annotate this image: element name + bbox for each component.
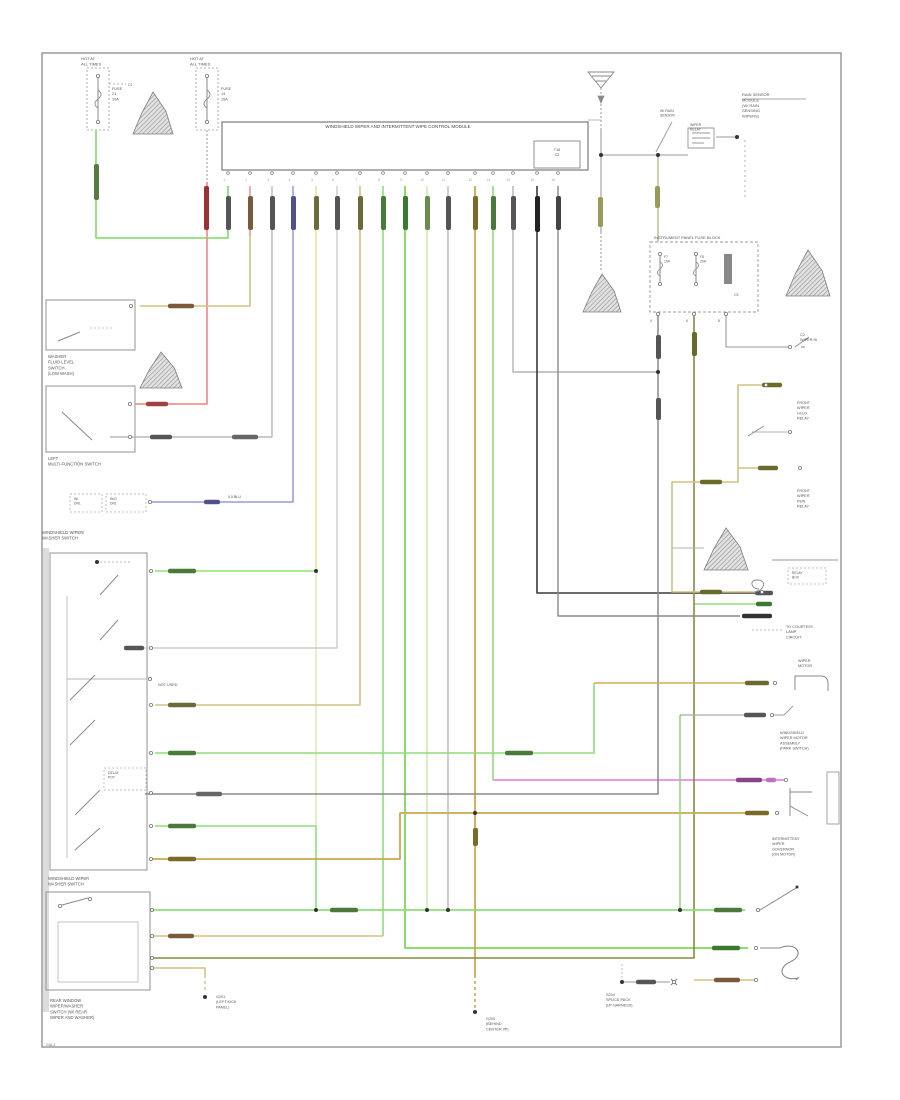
terminal-pin xyxy=(148,677,151,680)
terminal-pin xyxy=(148,500,151,503)
terminal-pin xyxy=(658,252,661,255)
terminal-pin xyxy=(129,304,132,307)
module-title: WINDSHIELD WIPER AND INTERMITTENT WIPE C… xyxy=(325,124,470,129)
terminal-pin xyxy=(96,120,99,123)
fuse-block-title: INSTRUMENT PANEL FUSE BLOCK xyxy=(654,235,721,240)
module-pin xyxy=(474,172,477,175)
tag xyxy=(335,196,340,230)
ground-dot xyxy=(203,995,207,999)
module-pin-number: 5 xyxy=(311,178,313,182)
terminal-pin xyxy=(754,978,757,981)
fuse2-hot-label: HOT ATALL TIMES xyxy=(190,56,211,66)
pin3-gray xyxy=(110,186,272,437)
tag xyxy=(473,828,478,846)
fuse-block-box xyxy=(650,242,758,312)
module-box xyxy=(222,122,588,170)
tag xyxy=(511,196,516,230)
wiper-switch-arm-4 xyxy=(70,720,95,745)
footer-ref: 24A-3 xyxy=(46,1043,55,1047)
module-pin xyxy=(426,172,429,175)
terminal-pin xyxy=(128,402,131,405)
wiper-switch-arm-2 xyxy=(100,620,118,640)
fuse-block-c3-tag xyxy=(724,254,732,284)
terminal-pin xyxy=(149,569,152,572)
terminal-pin xyxy=(205,120,208,123)
tag xyxy=(598,197,603,227)
tag xyxy=(226,196,231,230)
module-pin-number: 7 xyxy=(355,178,357,182)
junction xyxy=(656,370,660,374)
wiper-switch-box xyxy=(50,553,147,870)
terminal-pin xyxy=(658,282,661,285)
tag xyxy=(204,500,220,505)
wiper-motor-label: WIPERMOTOR xyxy=(798,659,812,668)
module-pin xyxy=(404,172,407,175)
junction xyxy=(314,908,318,912)
not-used-label: NOT USED xyxy=(158,683,178,687)
blue-wire-label: 0.5 BLU xyxy=(228,495,241,499)
module-pin-number: 9 xyxy=(400,178,402,182)
terminal-pin xyxy=(788,345,791,348)
terminal-pin xyxy=(724,312,727,315)
tag xyxy=(146,402,168,407)
module-pin xyxy=(271,172,274,175)
pin6-gray xyxy=(143,186,337,648)
tag xyxy=(168,703,196,708)
tag xyxy=(330,908,358,913)
tag xyxy=(168,824,196,829)
washer-switch-label: WINDSHIELD WIPERWASHER SWITCH xyxy=(48,876,89,887)
module-pin xyxy=(249,172,252,175)
antenna-arrowhead xyxy=(598,96,604,103)
wiper-switch-arm-1 xyxy=(100,575,118,595)
terminal-pin xyxy=(58,904,61,907)
module-pin xyxy=(382,172,385,175)
drl-opt-2: W/ODRL xyxy=(110,497,117,506)
multifunction-switch-box xyxy=(46,386,135,452)
tag xyxy=(756,602,772,607)
tag xyxy=(745,681,769,686)
tag xyxy=(655,186,660,208)
terminal-pin xyxy=(770,713,773,716)
wiper-switch-label: WINDSHIELD WIPER/WASHER SWITCH xyxy=(42,530,85,541)
module-pin xyxy=(315,172,318,175)
terminal-pin xyxy=(150,934,153,937)
fb-c3-tag: C3 xyxy=(734,293,739,297)
module-pin xyxy=(227,172,230,175)
wiper-switch-arm-5 xyxy=(75,790,100,815)
splice-triangle xyxy=(786,250,830,296)
fuse-olive-drop xyxy=(150,312,694,958)
fuse2-name: FUSE1415A xyxy=(221,87,232,101)
terminal-pin xyxy=(150,908,153,911)
mf-switch-arm xyxy=(62,412,92,440)
tag xyxy=(714,908,742,913)
ground-triangle xyxy=(583,274,621,312)
terminal-pin xyxy=(149,751,152,754)
junction xyxy=(314,569,318,573)
tag xyxy=(712,946,740,951)
governor-label: INTERMITTENTWIPERGOVERNOR(ON MOTOR) xyxy=(772,837,801,856)
junction xyxy=(425,908,429,912)
terminal-pin xyxy=(128,435,131,438)
tag xyxy=(446,196,451,230)
terminal-pin xyxy=(149,824,152,827)
tag xyxy=(403,196,408,230)
module-pin xyxy=(557,172,560,175)
fuse1-name: FUSE2110A xyxy=(112,87,123,101)
terminal-pin xyxy=(773,681,776,684)
pin15-black xyxy=(537,186,755,593)
wiper-switch-green-3 xyxy=(155,826,316,910)
park-switch-body xyxy=(827,772,839,824)
ground-g201: G201(LEFT KICKPANEL) xyxy=(216,995,237,1009)
pin7-tan xyxy=(155,186,360,705)
module-pin xyxy=(492,172,495,175)
tag xyxy=(168,934,194,939)
pin14-gray xyxy=(513,186,656,372)
terminal-pin xyxy=(149,857,152,860)
tag xyxy=(314,196,319,230)
sensor-option-note: W/ RAINSENSOR xyxy=(660,109,675,118)
module-pin-number: 4 xyxy=(288,178,290,182)
tag xyxy=(556,196,561,230)
module-pin-number: 2 xyxy=(245,178,247,182)
tag xyxy=(700,480,722,485)
junction xyxy=(95,560,99,564)
tag xyxy=(744,713,766,718)
module-pin-number: 16 xyxy=(551,178,555,182)
module-pin xyxy=(359,172,362,175)
tag xyxy=(291,196,296,230)
level-switch-arm xyxy=(58,332,80,341)
terminal-pin xyxy=(694,282,697,285)
washer-switch-inner-box xyxy=(58,922,138,982)
tag xyxy=(473,196,478,230)
rain-module-label: RAIN SENSORMODULE(W/ RAINSENSINGWIPERS) xyxy=(742,92,770,119)
tag xyxy=(491,196,496,230)
ground-g200: G200(BEHINDCENTER I/P) xyxy=(486,1017,509,1031)
junction xyxy=(656,153,660,157)
wiper-switch-green-2 xyxy=(155,683,594,753)
junction xyxy=(735,135,739,139)
module-pin-number: 1 xyxy=(223,178,225,182)
module-pin-number: 13 xyxy=(486,178,490,182)
tag xyxy=(736,778,762,783)
splice-s204: S204SPLICE PACK(I/P HARNESS) xyxy=(606,993,633,1007)
motor-bracket xyxy=(795,676,828,691)
multifunction-label: LEFTMULTI-FUNCTION SWITCH xyxy=(48,456,101,467)
tag xyxy=(742,614,772,619)
splice-triangle xyxy=(133,92,173,134)
module-pin xyxy=(292,172,295,175)
splice-triangle xyxy=(140,352,182,388)
fuse1-hot-label: HOT ATALL TIMES xyxy=(81,56,102,66)
park-switch-sym xyxy=(790,788,812,816)
module-pin-number: 12 xyxy=(468,178,472,182)
tag xyxy=(150,435,172,440)
module-pin xyxy=(512,172,515,175)
junction xyxy=(678,908,682,912)
terminal-pin xyxy=(88,897,91,900)
hilo-relay-label: FRONTWIPERHI-LORELAY xyxy=(797,401,811,420)
wiper-switch-arm-6 xyxy=(75,828,100,850)
washer-level-label: WASHERFLUID LEVELSWITCH(LOW WASH) xyxy=(48,354,75,376)
ground-dot xyxy=(473,1010,477,1014)
aux-switch-arm xyxy=(748,426,764,436)
antenna-triangle xyxy=(588,72,614,88)
relay-coil-label: C2WIPER HI xyxy=(800,333,817,342)
washer-switch-arm xyxy=(62,898,88,905)
terminal-pin xyxy=(656,312,659,315)
lamp-circuit-label: TO COURTESYLAMPCIRCUIT xyxy=(786,625,814,639)
tag xyxy=(425,196,430,230)
pin9-green xyxy=(405,186,748,948)
fb-fuse1-tag: F710A xyxy=(664,255,671,264)
junction xyxy=(446,908,450,912)
module-pin xyxy=(447,172,450,175)
tag xyxy=(381,196,386,230)
terminal-pin xyxy=(149,646,152,649)
tag xyxy=(168,304,194,309)
drl-opt-1: W/DRL xyxy=(74,497,81,506)
terminal-pin xyxy=(96,74,99,77)
module-pin-number: 10 xyxy=(420,178,424,182)
tag xyxy=(168,569,196,574)
tag xyxy=(692,332,697,356)
sensor-cluster-label: WIPERRELAY xyxy=(690,123,702,132)
terminal-pin xyxy=(149,791,152,794)
module-pin xyxy=(536,172,539,175)
tag xyxy=(204,186,209,230)
tag xyxy=(656,335,661,359)
tag xyxy=(700,590,722,595)
contact-dot xyxy=(796,886,799,889)
tag xyxy=(232,435,258,440)
relay-note: RELAYBOX xyxy=(792,571,803,579)
tag xyxy=(358,196,363,230)
park-link-arm xyxy=(772,706,793,715)
fb-pin-6: 6 xyxy=(686,319,688,323)
terminal-pin xyxy=(760,590,763,593)
terminal-pin xyxy=(149,703,152,706)
tag xyxy=(124,646,144,651)
tag xyxy=(94,164,99,200)
tag xyxy=(636,980,656,985)
terminal-pin xyxy=(150,956,153,959)
terminal-pin xyxy=(788,430,791,433)
terminal-pin xyxy=(672,980,675,983)
tag xyxy=(505,751,533,756)
tag xyxy=(758,466,778,471)
terminal-pin xyxy=(205,74,208,77)
tag xyxy=(196,792,222,797)
module-pin-number: 8 xyxy=(378,178,380,182)
module-pin-number: 15 xyxy=(530,178,534,182)
terminal-pin xyxy=(784,778,787,781)
junction xyxy=(473,811,477,815)
module-pin-number: 11 xyxy=(442,178,446,182)
terminal-pin xyxy=(694,252,697,255)
rear-wiper-note: REAR WINDOWWIPER/WASHERSWITCH (W/ REARWI… xyxy=(50,998,95,1020)
washer-level-switch-box xyxy=(46,300,135,350)
fuse1-conn: C1 xyxy=(128,83,133,87)
terminal-pin xyxy=(798,466,801,469)
washer-ground-tan xyxy=(150,968,205,975)
park-cam-switch xyxy=(760,888,796,910)
module-pin-number: 3 xyxy=(267,178,269,182)
tag xyxy=(168,751,196,756)
tag xyxy=(535,196,540,232)
sensor-switch-arm xyxy=(656,122,672,152)
wiring-diagram-canvas: 12345678910111213141516HOT ATALL TIMESFU… xyxy=(0,0,900,1100)
terminal-pin xyxy=(150,966,153,969)
splice-triangle xyxy=(704,528,748,570)
terminal-pin xyxy=(754,946,757,949)
wiper-park-gray-riser xyxy=(145,312,658,794)
terminal-pin xyxy=(692,312,695,315)
module-pin-number: 6 xyxy=(332,178,334,182)
pin2-tan xyxy=(140,236,250,306)
run-relay-label: FRONTWIPERRUNRELAY xyxy=(797,489,811,508)
wiring-diagram-page: 12345678910111213141516HOT ATALL TIMESFU… xyxy=(0,0,900,1100)
splice-dot xyxy=(620,980,624,984)
tag xyxy=(168,857,196,862)
wiper-switch-gold xyxy=(150,813,748,859)
park-switch-note: WINDSHIELDWIPER MOTORASSEMBLY(PARK SWITC… xyxy=(780,731,809,750)
tag xyxy=(656,398,661,420)
tag xyxy=(270,196,275,230)
washer-pump-coil xyxy=(760,946,798,980)
tag xyxy=(714,978,740,983)
delay-pot-label: DELAYPOT xyxy=(108,771,120,780)
module-pin-number: 14 xyxy=(506,178,510,182)
fb-pin-4: 4 xyxy=(650,319,652,323)
module-sub: T18C2 xyxy=(554,148,561,157)
junction xyxy=(599,153,603,157)
tag xyxy=(745,811,769,816)
tag xyxy=(248,196,253,230)
module-pin xyxy=(336,172,339,175)
fb-fuse2-tag: F820A xyxy=(700,255,707,264)
terminal-pin xyxy=(764,383,767,386)
fb-pin-8: 8 xyxy=(718,319,720,323)
terminal-pin xyxy=(756,908,759,911)
fuse-pin3-stub xyxy=(726,312,788,347)
tag xyxy=(766,778,776,783)
terminal-pin xyxy=(775,811,778,814)
